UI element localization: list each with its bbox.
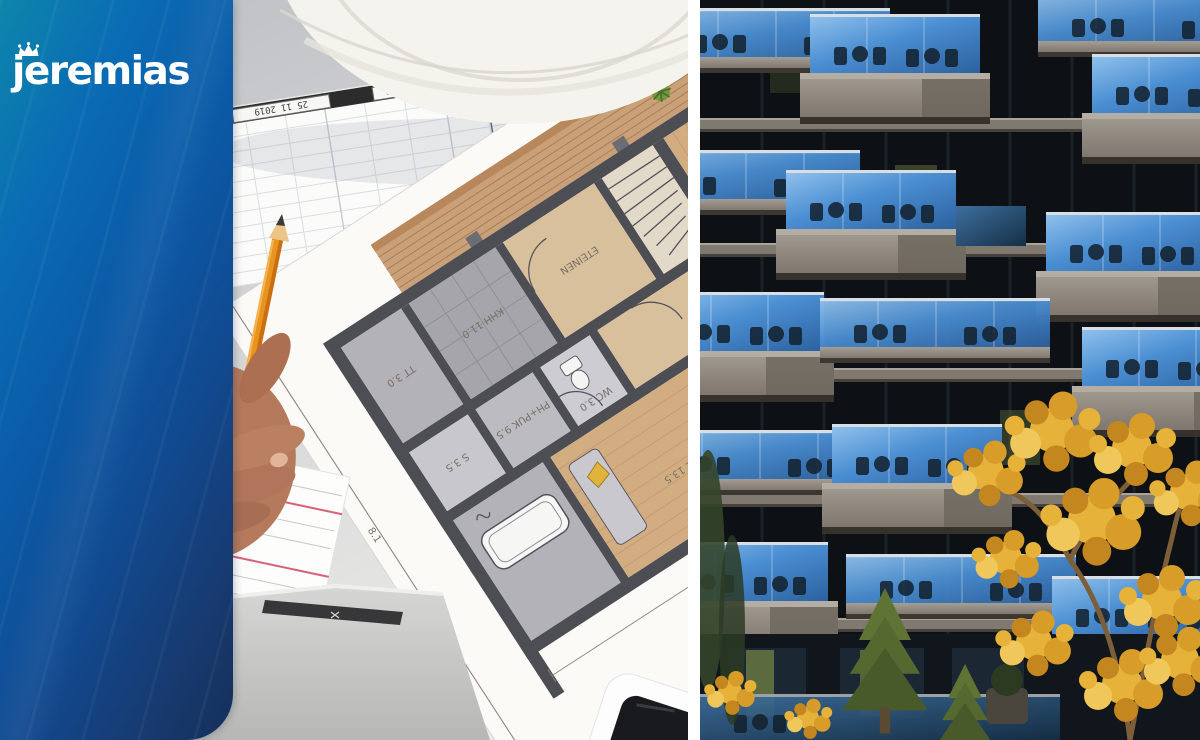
blueprint-photo: 25 11 2019 10:00 10:00:00 bbox=[185, 0, 688, 740]
jeremias-logo: jeremias bbox=[12, 40, 222, 110]
brand-wordmark: jeremias bbox=[12, 52, 189, 91]
balcony bbox=[1082, 54, 1200, 164]
building-photo bbox=[700, 0, 1200, 740]
balcony bbox=[800, 14, 990, 124]
balcony bbox=[820, 298, 1050, 363]
brand-panel: jeremias bbox=[0, 0, 233, 740]
hero-banner: 25 11 2019 10:00 10:00:00 bbox=[0, 0, 1200, 740]
balcony bbox=[700, 292, 834, 402]
photo-divider bbox=[688, 0, 700, 740]
balcony bbox=[1038, 0, 1200, 57]
balcony bbox=[1036, 212, 1200, 322]
balcony bbox=[776, 170, 966, 280]
